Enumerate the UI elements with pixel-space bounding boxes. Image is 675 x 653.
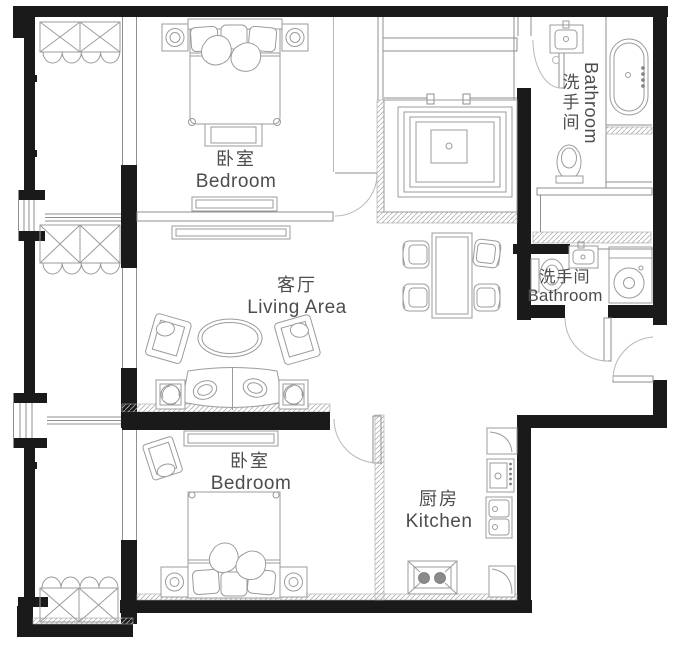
washing-machine-icon xyxy=(609,247,652,303)
nightstand-icon xyxy=(161,567,188,597)
kitchen-label-zh: 厨房 xyxy=(419,489,459,509)
nightstand-icon xyxy=(162,24,188,51)
armchair-icon xyxy=(274,314,321,366)
sink-icon xyxy=(569,242,598,268)
nightstand-icon xyxy=(282,24,308,51)
floor-plan-page: 卧室 Bedroom 客厅 Living Area 卧室 Bedroom 厨房 … xyxy=(0,0,675,653)
tv-stand-icon xyxy=(172,226,290,239)
bathroom-middle-label-zh: 洗手间 xyxy=(539,268,590,286)
dining-chair-icon xyxy=(403,284,429,311)
wardrobes xyxy=(40,22,120,622)
bathroom-top-label-zh: 洗手间 xyxy=(563,73,580,132)
double-bed-icon xyxy=(188,19,282,146)
closet-feature xyxy=(377,17,517,223)
bay-window-lower xyxy=(13,393,121,448)
toilet-icon xyxy=(556,145,583,183)
dining-chair-icon xyxy=(403,241,429,268)
bathtub-icon xyxy=(610,39,648,115)
floor-plan: 卧室 Bedroom 客厅 Living Area 卧室 Bedroom 厨房 … xyxy=(0,0,675,653)
kitchen-counter-icon xyxy=(486,428,517,597)
dresser-icon xyxy=(192,197,277,211)
kitchen-label-en: Kitchen xyxy=(406,511,473,532)
side-table-plant-icon xyxy=(279,380,308,409)
bedroom-bottom-label-en: Bedroom xyxy=(211,473,292,494)
nightstand-icon xyxy=(280,567,307,597)
bedroom-top-label-zh: 卧室 xyxy=(216,149,256,169)
sink-icon xyxy=(550,21,583,53)
stove-icon xyxy=(408,561,457,594)
wardrobe-bottom xyxy=(40,577,118,622)
dining-chair-icon xyxy=(474,284,500,311)
bedroom-bottom-furniture xyxy=(142,431,307,598)
desk-icon xyxy=(184,431,278,446)
sofa-icon xyxy=(182,368,283,411)
concentric-square-detail xyxy=(398,107,512,197)
interior-walls xyxy=(33,17,653,624)
bedroom-bottom-label-zh: 卧室 xyxy=(230,451,270,471)
wardrobe-top xyxy=(40,22,120,63)
bedroom-bottom-door xyxy=(334,416,381,463)
living-furniture xyxy=(145,313,321,410)
bathroom-middle-label-en: Bathroom xyxy=(527,286,602,305)
coffee-table-icon xyxy=(198,319,262,357)
side-table-plant-icon xyxy=(156,380,185,409)
bathroom-middle-door xyxy=(565,318,611,361)
living-area-label-zh: 客厅 xyxy=(277,275,317,295)
bathroom-top-label-en: Bathroom xyxy=(581,62,601,144)
wardrobe-middle xyxy=(40,225,120,274)
bay-window-upper xyxy=(18,190,121,241)
double-bed-icon xyxy=(188,492,280,598)
entry-door xyxy=(613,337,653,382)
bedroom-top-label-en: Bedroom xyxy=(196,171,277,192)
living-area-label-en: Living Area xyxy=(247,297,347,318)
dining-chair-icon xyxy=(472,239,501,269)
drain-icon xyxy=(553,57,560,64)
bedroom-top-door xyxy=(335,173,377,216)
dining-table-icon xyxy=(432,233,472,318)
chair-icon xyxy=(142,436,183,481)
bedroom-top-furniture xyxy=(162,19,308,239)
armchair-icon xyxy=(145,313,192,365)
dining-furniture xyxy=(403,233,501,318)
